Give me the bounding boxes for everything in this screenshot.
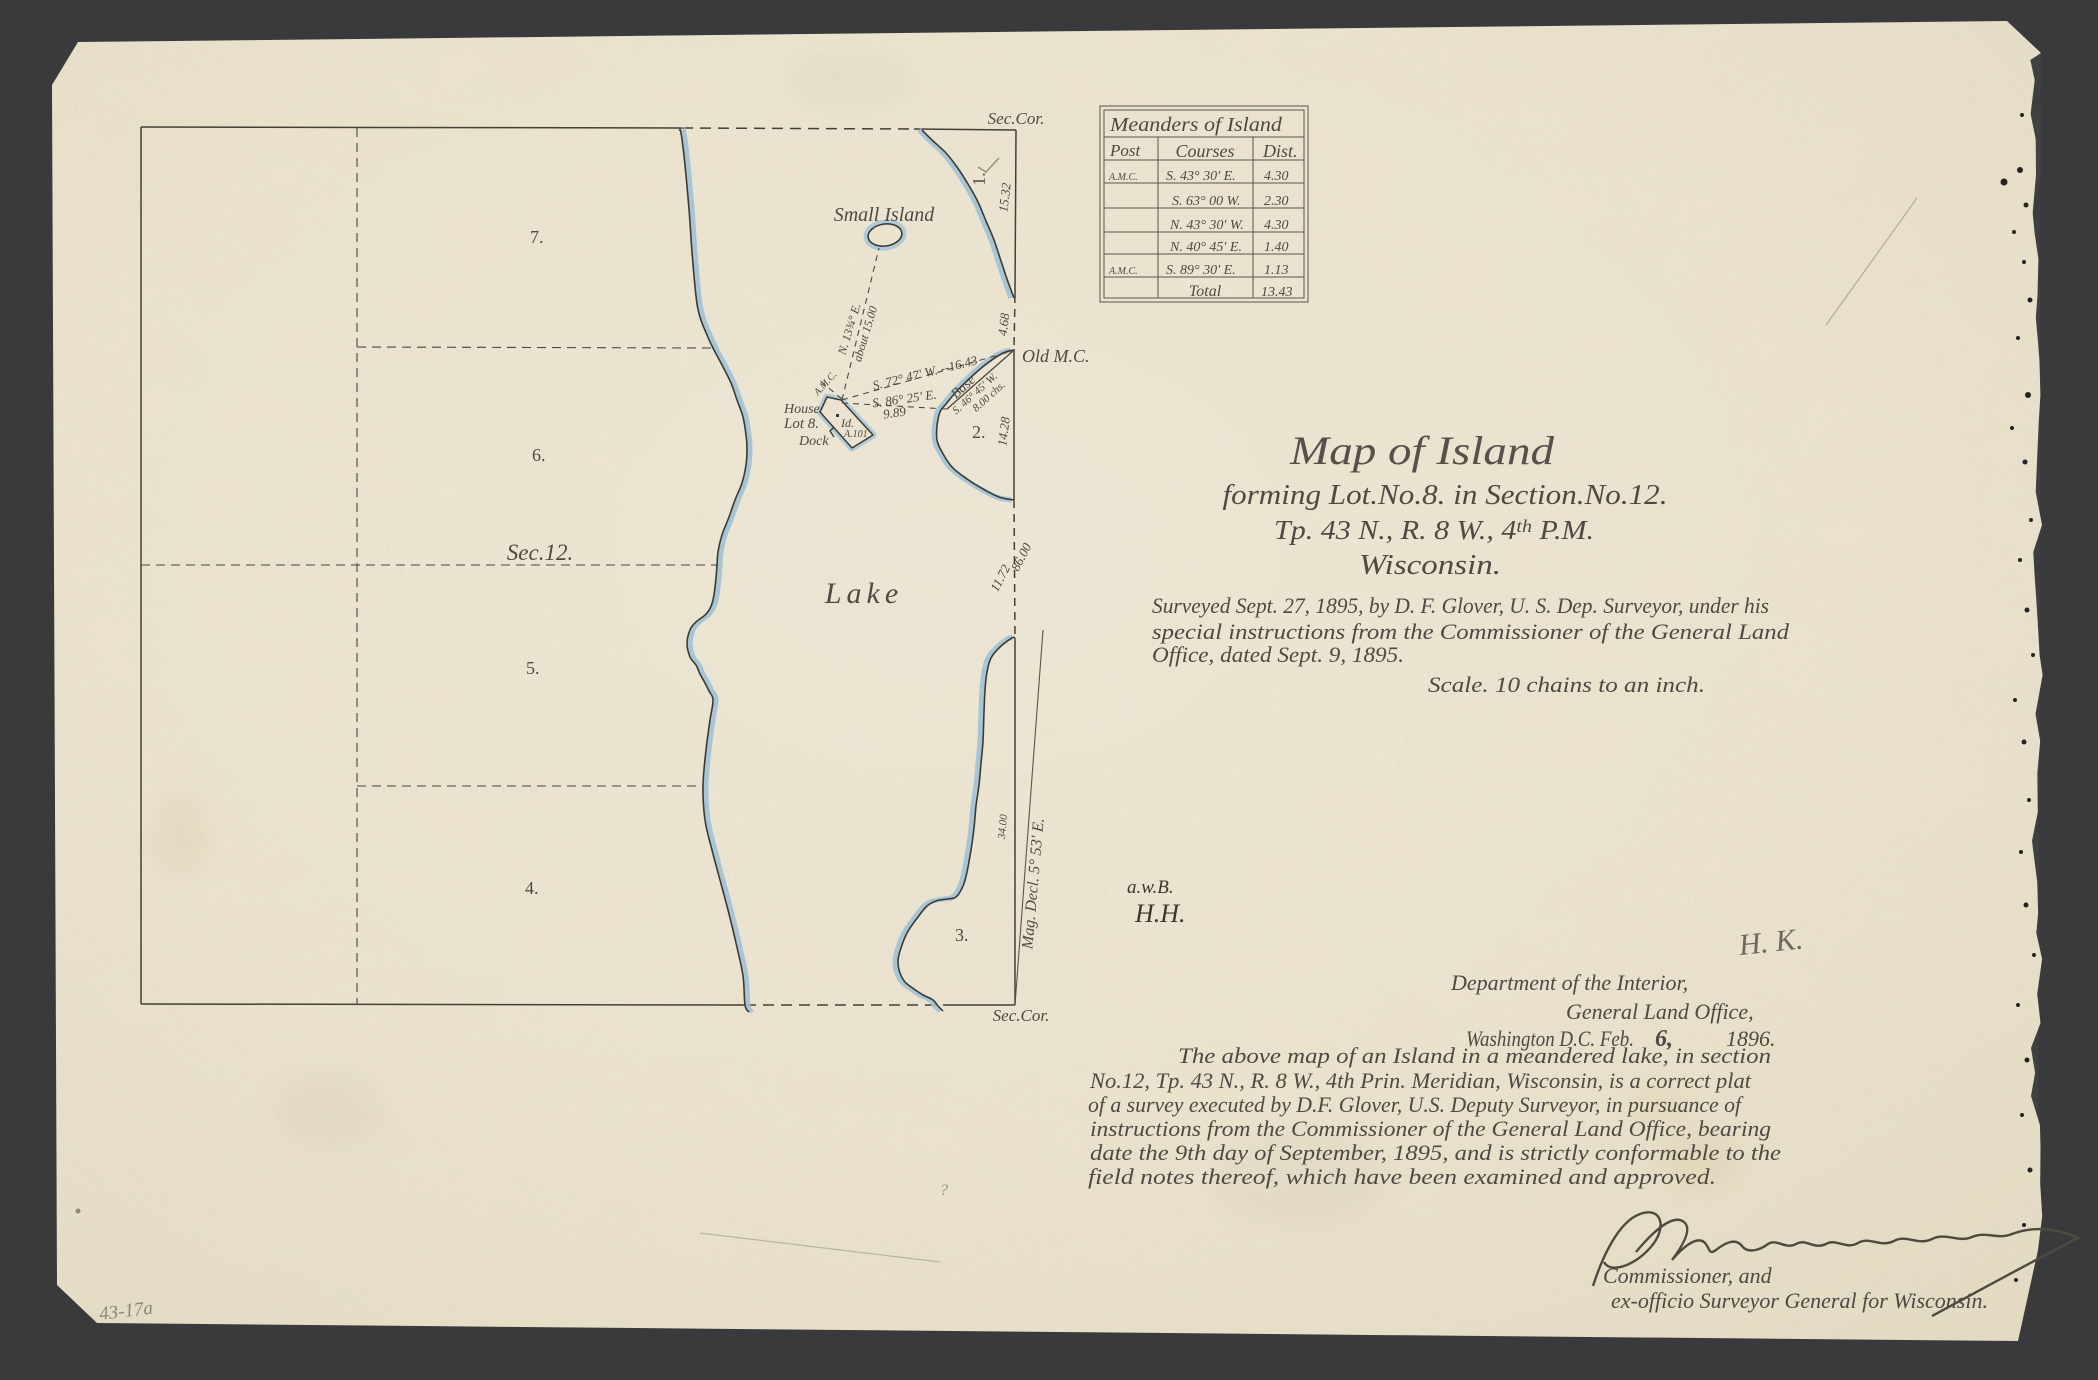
svg-text:1.: 1. xyxy=(969,172,989,186)
svg-text:Post: Post xyxy=(1109,141,1142,160)
svg-text:S. 89° 30' E.: S. 89° 30' E. xyxy=(1166,263,1236,278)
svg-text:Sec.Cor.: Sec.Cor. xyxy=(988,109,1045,128)
svg-text:5.: 5. xyxy=(526,658,540,678)
svg-text:Lake: Lake xyxy=(824,577,903,610)
svg-text:H.H.: H.H. xyxy=(1134,899,1186,928)
svg-text:1.40: 1.40 xyxy=(1264,240,1289,255)
svg-text:ex-officio Surveyor General fo: ex-officio Surveyor General for Wisconsi… xyxy=(1611,1288,1988,1313)
svg-text:a.w.B.: a.w.B. xyxy=(1127,877,1174,898)
svg-text:Sec.Cor.: Sec.Cor. xyxy=(993,1006,1050,1025)
svg-text:34.00: 34.00 xyxy=(996,813,1010,840)
svg-text:Dock: Dock xyxy=(798,434,829,449)
svg-text:date the 9th day of September,: date the 9th day of September, 1895, and… xyxy=(1090,1140,1781,1165)
svg-text:The above map of an Island in: The above map of an Island in a meandere… xyxy=(1178,1043,1771,1068)
svg-text:H. K.: H. K. xyxy=(1736,922,1804,962)
svg-text:House: House xyxy=(783,402,820,417)
svg-text:Office, dated Sept. 9, 1895.: Office, dated Sept. 9, 1895. xyxy=(1152,642,1404,667)
svg-text:Scale. 10 chains to an inch.: Scale. 10 chains to an inch. xyxy=(1428,672,1705,697)
svg-text:Meanders of Island: Meanders of Island xyxy=(1109,114,1283,136)
svg-text:?: ? xyxy=(940,1182,948,1199)
svg-text:Wisconsin.: Wisconsin. xyxy=(1359,549,1501,581)
svg-text:A.M.C.: A.M.C. xyxy=(1108,266,1138,277)
svg-text:2.: 2. xyxy=(972,422,986,442)
svg-text:No.12, Tp. 43 N., R. 8 W., 4th: No.12, Tp. 43 N., R. 8 W., 4th Prin. Mer… xyxy=(1089,1068,1752,1093)
svg-text:9.89: 9.89 xyxy=(882,403,907,421)
svg-text:Sec.12.: Sec.12. xyxy=(507,540,573,565)
svg-text:13.43: 13.43 xyxy=(1261,285,1293,300)
svg-text:3.: 3. xyxy=(955,925,969,945)
svg-text:4.30: 4.30 xyxy=(1264,218,1289,233)
svg-text:2.30: 2.30 xyxy=(1264,194,1289,209)
svg-text:S. 43° 30' E.: S. 43° 30' E. xyxy=(1166,169,1236,184)
svg-text:Commissioner, and: Commissioner, and xyxy=(1603,1263,1773,1288)
svg-text:Tp. 43 N., R. 8 W., 4th P.M.: Tp. 43 N., R. 8 W., 4th P.M. xyxy=(1274,515,1594,545)
svg-text:6.: 6. xyxy=(532,445,546,465)
svg-text:4.30: 4.30 xyxy=(1264,169,1289,184)
svg-text:4.: 4. xyxy=(525,878,539,898)
svg-text:Id.: Id. xyxy=(840,416,854,430)
svg-text:1.13: 1.13 xyxy=(1264,263,1289,278)
svg-text:of a survey executed by D.F. G: of a survey executed by D.F. Glover, U.S… xyxy=(1088,1092,1744,1117)
svg-text:S. 63° 00 W.: S. 63° 00 W. xyxy=(1172,194,1240,209)
svg-text:Surveyed Sept. 27, 1895, by D.: Surveyed Sept. 27, 1895, by D. F. Glover… xyxy=(1152,593,1769,618)
svg-text:instructions from the Commissi: instructions from the Commissioner of th… xyxy=(1090,1116,1771,1141)
svg-text:Small Island: Small Island xyxy=(834,204,936,226)
svg-text:Total: Total xyxy=(1189,283,1222,300)
svg-text:Old M.C.: Old M.C. xyxy=(1022,346,1090,366)
svg-text:4.68: 4.68 xyxy=(995,312,1013,337)
svg-text:General Land Office,: General Land Office, xyxy=(1566,999,1754,1024)
svg-text:Courses: Courses xyxy=(1175,141,1234,161)
svg-text:A.M.C.: A.M.C. xyxy=(1108,172,1138,183)
svg-text:N. 43° 30' W.: N. 43° 30' W. xyxy=(1169,218,1244,233)
svg-text:Map of Island: Map of Island xyxy=(1289,428,1555,473)
svg-text:Dist.: Dist. xyxy=(1262,141,1298,161)
svg-text:special instructions from the: special instructions from the Commission… xyxy=(1152,619,1790,644)
svg-text:field notes thereof, which hav: field notes thereof, which have been exa… xyxy=(1088,1164,1716,1189)
svg-text:A.101: A.101 xyxy=(843,429,868,440)
svg-text:N. 40° 45' E.: N. 40° 45' E. xyxy=(1169,240,1242,255)
svg-text:7.: 7. xyxy=(530,227,544,247)
svg-text:Lot 8.: Lot 8. xyxy=(783,416,819,432)
svg-text:Department of the Interior,: Department of the Interior, xyxy=(1450,970,1688,995)
svg-text:forming Lot.No.8. in Section.N: forming Lot.No.8. in Section.No.12. xyxy=(1223,479,1668,511)
